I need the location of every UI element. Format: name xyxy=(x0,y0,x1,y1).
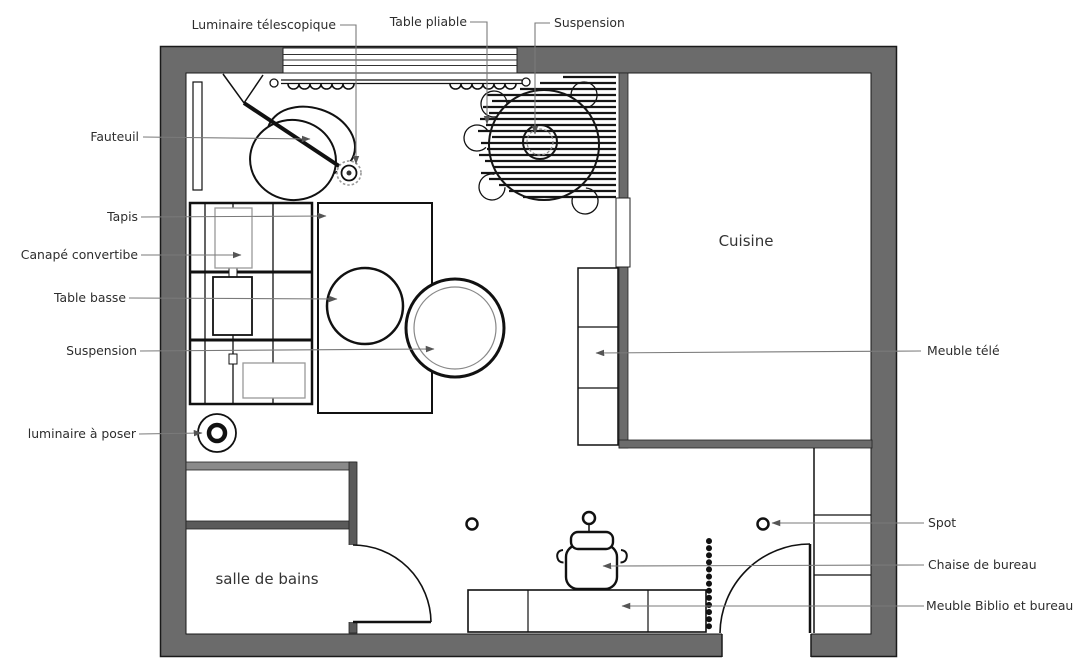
label-suspension-gauche: Suspension xyxy=(66,343,137,358)
label-meuble-tele: Meuble télé xyxy=(927,343,1000,358)
room-label-salle-de-bains: salle de bains xyxy=(215,570,318,588)
label-meuble-biblio-et-bureau: Meuble Biblio et bureau xyxy=(926,598,1073,613)
tv-cabinet xyxy=(578,268,618,445)
label-spot: Spot xyxy=(928,515,956,530)
floor-plan-drawing: Luminaire télescopique Table pliable Sus… xyxy=(0,0,1079,661)
wardrobe xyxy=(814,448,871,633)
curtain-end-ring xyxy=(522,78,530,86)
telescopic-lamp-bulb xyxy=(347,171,352,176)
room-label-cuisine: Cuisine xyxy=(719,232,774,250)
sofa-cushion xyxy=(213,277,252,335)
label-luminaire-a-poser: luminaire à poser xyxy=(28,426,137,441)
entrance-door-swing xyxy=(720,544,810,633)
dining-chair xyxy=(464,125,488,151)
radiator xyxy=(193,82,202,190)
office-chair-back xyxy=(571,532,613,549)
spot-light xyxy=(758,519,769,530)
telescopic-lamp-mount xyxy=(223,74,263,103)
office-chair-knob xyxy=(583,512,595,524)
kitchen-wall-horizontal xyxy=(619,440,872,448)
bathroom-walls xyxy=(186,462,358,633)
armchair xyxy=(245,96,364,206)
entrance-door xyxy=(720,544,811,658)
label-table-basse: Table basse xyxy=(53,290,126,305)
spot-light xyxy=(467,519,478,530)
coffee-table xyxy=(327,268,403,344)
curtain xyxy=(270,78,530,89)
office-chair xyxy=(557,512,627,592)
bathroom-doorway-gap xyxy=(348,545,358,622)
label-tapis: Tapis xyxy=(106,209,138,224)
office-chair-armrest xyxy=(621,550,627,563)
bathroom-door xyxy=(353,545,431,622)
window xyxy=(283,48,517,73)
desk-outline xyxy=(468,590,706,632)
label-table-pliable: Table pliable xyxy=(389,14,467,29)
desk-bookcase xyxy=(468,590,706,632)
office-chair-armrest xyxy=(557,550,563,563)
bathroom-wall-top xyxy=(186,521,352,529)
pendant-living-outer xyxy=(406,279,504,377)
curtain-folds-left xyxy=(288,84,354,89)
entrance-doorway-gap xyxy=(722,634,811,658)
label-suspension-haut: Suspension xyxy=(554,15,625,30)
label-chaise-de-bureau: Chaise de bureau xyxy=(928,557,1037,572)
label-luminaire-telescopique: Luminaire télescopique xyxy=(192,17,336,32)
label-fauteuil: Fauteuil xyxy=(90,129,139,144)
kitchen-walls xyxy=(616,73,872,448)
curtain-end-ring xyxy=(270,79,278,87)
sofa-connector xyxy=(229,354,237,364)
tv-cabinet-outline xyxy=(578,268,618,445)
floor-lamp-base xyxy=(209,425,225,441)
closet-wall-top xyxy=(186,462,356,470)
sofa-cushion xyxy=(243,363,305,398)
sofa-bed xyxy=(190,203,312,404)
hatch-area xyxy=(478,77,616,197)
office-chair-seat xyxy=(566,545,617,589)
pendant-living xyxy=(406,279,504,377)
kitchen-wall-opening xyxy=(616,198,630,267)
wall-top xyxy=(160,46,897,73)
floor-lamp xyxy=(198,414,236,452)
floor-plan: Luminaire télescopique Table pliable Sus… xyxy=(0,0,1079,661)
bathroom-door-swing xyxy=(353,545,431,622)
label-canape-convertible: Canapé convertibe xyxy=(21,247,138,262)
leader-suspension-haut xyxy=(535,23,550,134)
curtain-folds-right xyxy=(450,84,516,89)
leader-luminaire-a-poser xyxy=(139,433,202,434)
